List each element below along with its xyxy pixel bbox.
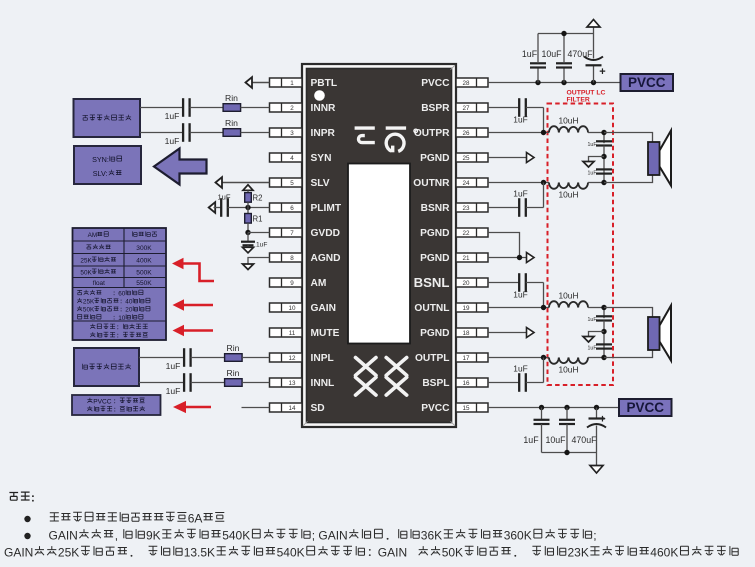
svg-text:1uF: 1uF bbox=[588, 142, 597, 148]
svg-text:4: 4 bbox=[290, 155, 294, 162]
svg-text:10uH: 10uH bbox=[558, 190, 578, 200]
svg-text:25K: 25K bbox=[83, 299, 95, 306]
svg-text:300K: 300K bbox=[136, 245, 152, 252]
svg-text:MUTE: MUTE bbox=[311, 328, 340, 339]
svg-text:R1: R1 bbox=[253, 215, 263, 224]
svg-text:10uH: 10uH bbox=[558, 365, 578, 375]
svg-text:AGND: AGND bbox=[311, 253, 341, 264]
svg-text:1uF: 1uF bbox=[513, 364, 527, 374]
svg-text:PVCC: PVCC bbox=[93, 399, 112, 406]
svg-text:20: 20 bbox=[125, 307, 133, 314]
svg-text:24: 24 bbox=[462, 180, 470, 187]
svg-text:OUTNL: OUTNL bbox=[414, 303, 449, 314]
svg-text:550K: 550K bbox=[136, 280, 152, 287]
svg-text:AM: AM bbox=[311, 278, 327, 289]
svg-text:13: 13 bbox=[288, 380, 296, 387]
svg-text:25: 25 bbox=[462, 155, 470, 162]
svg-text:500K: 500K bbox=[136, 269, 152, 276]
svg-text:BSNL: BSNL bbox=[414, 275, 450, 290]
svg-text:PVCC: PVCC bbox=[627, 400, 665, 415]
svg-text:6A: 6A bbox=[188, 512, 203, 526]
svg-text:; GAIN: ; GAIN bbox=[312, 529, 348, 543]
svg-text:11: 11 bbox=[289, 330, 296, 337]
svg-text:,: , bbox=[115, 529, 118, 543]
svg-text:21: 21 bbox=[462, 255, 470, 262]
svg-text:OUTPL: OUTPL bbox=[415, 353, 450, 364]
svg-text:GAIN: GAIN bbox=[4, 546, 33, 560]
svg-text:1uF: 1uF bbox=[513, 290, 527, 300]
svg-text:3: 3 bbox=[290, 130, 294, 137]
svg-text:1uF: 1uF bbox=[523, 435, 539, 445]
svg-text:50K: 50K bbox=[83, 307, 95, 314]
svg-text:1uF: 1uF bbox=[256, 242, 267, 249]
svg-text:PGND: PGND bbox=[420, 328, 449, 339]
svg-text:23K: 23K bbox=[568, 546, 589, 560]
svg-text:60: 60 bbox=[118, 291, 126, 298]
svg-text:470uF: 470uF bbox=[572, 435, 598, 445]
svg-text:17: 17 bbox=[462, 355, 470, 362]
svg-text:;: ; bbox=[593, 529, 596, 543]
svg-text:18: 18 bbox=[462, 330, 470, 337]
svg-text:13.5K: 13.5K bbox=[184, 546, 215, 560]
svg-text:INPL: INPL bbox=[311, 353, 334, 364]
svg-text:1uF: 1uF bbox=[166, 361, 181, 371]
svg-text:6: 6 bbox=[290, 205, 294, 212]
svg-text:26: 26 bbox=[462, 130, 470, 137]
svg-text:GAIN: GAIN bbox=[49, 529, 78, 543]
svg-text:PGND: PGND bbox=[420, 228, 449, 239]
svg-text:28: 28 bbox=[462, 80, 470, 87]
svg-text:FILTER: FILTER bbox=[567, 97, 590, 104]
svg-text:22: 22 bbox=[462, 230, 470, 237]
svg-text:2: 2 bbox=[290, 105, 294, 112]
svg-text:12: 12 bbox=[288, 355, 296, 362]
svg-text:SD: SD bbox=[311, 403, 325, 414]
svg-text:INPR: INPR bbox=[311, 128, 336, 139]
svg-text:1uF: 1uF bbox=[165, 136, 180, 146]
svg-text:PVCC: PVCC bbox=[628, 75, 666, 90]
svg-text:1uF: 1uF bbox=[166, 386, 181, 396]
svg-text:R2: R2 bbox=[253, 194, 263, 203]
svg-text:50K: 50K bbox=[442, 546, 463, 560]
svg-text:10: 10 bbox=[118, 315, 126, 322]
svg-text:40: 40 bbox=[125, 299, 133, 306]
svg-text:1uF: 1uF bbox=[522, 49, 538, 59]
svg-text:Rin: Rin bbox=[227, 368, 240, 378]
svg-text:BSPR: BSPR bbox=[421, 103, 450, 114]
svg-text:+: + bbox=[599, 414, 605, 426]
svg-text:1uF: 1uF bbox=[513, 189, 527, 199]
svg-text:OUTPUT LC: OUTPUT LC bbox=[567, 90, 606, 97]
svg-text:OUTPR: OUTPR bbox=[414, 128, 450, 139]
svg-text:PGND: PGND bbox=[420, 153, 449, 164]
svg-text:50K: 50K bbox=[80, 269, 92, 276]
svg-text:14: 14 bbox=[288, 405, 296, 412]
svg-text:PVCC: PVCC bbox=[421, 403, 450, 414]
svg-text:SLV: SLV bbox=[311, 178, 330, 189]
svg-text:27: 27 bbox=[462, 105, 470, 112]
svg-text:1uF: 1uF bbox=[165, 111, 180, 121]
svg-text:10uH: 10uH bbox=[558, 291, 578, 301]
svg-text:AM: AM bbox=[88, 232, 98, 239]
svg-text:PGND: PGND bbox=[420, 253, 449, 264]
svg-text:10: 10 bbox=[288, 305, 296, 312]
svg-text:PVCC: PVCC bbox=[421, 78, 450, 89]
svg-text:PBTL: PBTL bbox=[311, 78, 338, 89]
svg-text:Rin: Rin bbox=[225, 93, 238, 103]
svg-text:Rin: Rin bbox=[227, 343, 240, 353]
svg-text:BSNR: BSNR bbox=[421, 203, 451, 214]
svg-text:36K: 36K bbox=[421, 529, 442, 543]
svg-text:8: 8 bbox=[290, 255, 294, 262]
svg-text:GVDD: GVDD bbox=[311, 228, 340, 239]
svg-text:BSPL: BSPL bbox=[422, 378, 449, 389]
svg-text:460K: 460K bbox=[650, 546, 678, 560]
svg-text:GAIN: GAIN bbox=[311, 303, 336, 314]
svg-text:1uF: 1uF bbox=[588, 346, 597, 352]
svg-text:float: float bbox=[93, 280, 105, 287]
svg-text:16: 16 bbox=[462, 380, 470, 387]
svg-text:10uH: 10uH bbox=[558, 116, 578, 126]
svg-text:470uF: 470uF bbox=[568, 49, 594, 59]
svg-text:1: 1 bbox=[290, 80, 294, 87]
svg-text:1uF: 1uF bbox=[588, 171, 597, 177]
svg-text:10uF: 10uF bbox=[545, 435, 566, 445]
svg-text:7: 7 bbox=[290, 230, 294, 237]
svg-text:9K: 9K bbox=[146, 529, 161, 543]
svg-text:Rin: Rin bbox=[225, 118, 238, 128]
svg-text:20: 20 bbox=[462, 280, 470, 287]
svg-text:SLV:: SLV: bbox=[93, 169, 108, 178]
svg-text:400K: 400K bbox=[136, 257, 152, 264]
svg-text:9: 9 bbox=[290, 280, 294, 287]
svg-text:1uF: 1uF bbox=[217, 193, 230, 202]
svg-text:1uF: 1uF bbox=[513, 115, 527, 125]
svg-text:5: 5 bbox=[290, 180, 294, 187]
svg-text:19: 19 bbox=[462, 305, 470, 312]
svg-text:OUTNR: OUTNR bbox=[413, 178, 450, 189]
svg-text:25K: 25K bbox=[58, 546, 79, 560]
svg-text:10uF: 10uF bbox=[541, 49, 562, 59]
svg-text:INNR: INNR bbox=[311, 103, 337, 114]
svg-text:GAIN: GAIN bbox=[378, 546, 407, 560]
svg-text:540K: 540K bbox=[222, 529, 250, 543]
svg-text:SYN:: SYN: bbox=[92, 155, 109, 164]
svg-text:+: + bbox=[599, 66, 605, 78]
svg-text:INNL: INNL bbox=[311, 378, 335, 389]
svg-text:15: 15 bbox=[462, 405, 470, 412]
svg-text:PLIMT: PLIMT bbox=[311, 203, 342, 214]
svg-text:540K: 540K bbox=[277, 546, 305, 560]
svg-text:25K: 25K bbox=[80, 257, 92, 264]
svg-text::: : bbox=[31, 493, 35, 505]
svg-text:23: 23 bbox=[462, 205, 470, 212]
svg-text:1uF: 1uF bbox=[588, 317, 597, 323]
svg-text:SYN: SYN bbox=[311, 153, 332, 164]
svg-text:360K: 360K bbox=[504, 529, 532, 543]
